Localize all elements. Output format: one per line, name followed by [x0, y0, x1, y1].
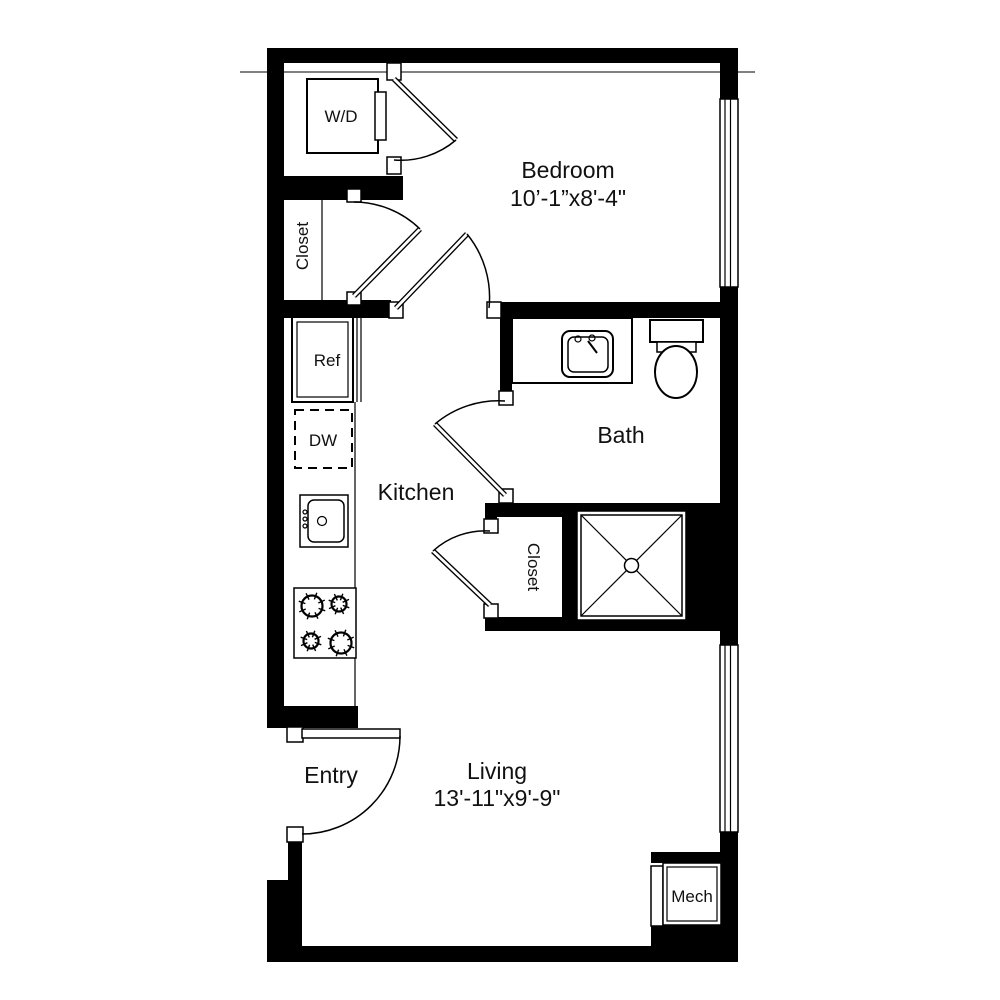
wall-below-wd-closet	[267, 176, 403, 200]
window-frame	[720, 99, 738, 287]
door-leaf	[302, 729, 400, 738]
shower-drain	[625, 559, 639, 573]
wall-kitchen-bedroom-left	[267, 300, 391, 318]
wall-kitchen-cap	[267, 706, 358, 728]
door-jamb	[499, 391, 513, 405]
window-frame	[720, 645, 738, 832]
mech-door-slab	[651, 866, 663, 926]
toilet-bowl	[655, 346, 697, 398]
wall-shower-right-block	[686, 503, 738, 631]
wall-left	[267, 48, 284, 712]
door-jamb	[387, 63, 401, 80]
floor-plan-page: Bedroom 10’-1”x8'-4" Bath Kitchen Living…	[0, 0, 1000, 1000]
bath-label: Bath	[597, 422, 644, 448]
wall-entry-strip	[288, 842, 302, 880]
living-window	[720, 645, 738, 832]
floor-plan-svg: Bedroom 10’-1”x8'-4" Bath Kitchen Living…	[0, 0, 1000, 1000]
entry-label: Entry	[304, 762, 358, 788]
mech-label: Mech	[671, 887, 713, 906]
shower	[577, 511, 686, 620]
door-jamb	[287, 827, 303, 842]
toilet-tank	[650, 320, 703, 342]
wall-shower-divider	[562, 503, 578, 631]
wall-right-upper	[720, 48, 738, 99]
living-label: Living	[467, 758, 527, 784]
kitchen-sink	[300, 495, 348, 547]
wall-bath-left	[500, 318, 512, 394]
wall-top	[267, 48, 738, 63]
wall-bath-top	[499, 302, 738, 318]
stove	[294, 588, 356, 658]
washer-dryer-label: W/D	[324, 107, 357, 126]
bath-vanity	[512, 318, 632, 383]
door-jamb	[484, 604, 498, 618]
dishwasher-label: DW	[309, 431, 337, 450]
living-dimensions: 13'-11"x9'-9"	[434, 785, 561, 811]
bedroom-window	[720, 99, 738, 287]
hall-closet-label: Closet	[524, 543, 543, 591]
door-jamb	[287, 727, 303, 742]
bedroom-closet-label: Closet	[293, 222, 312, 270]
washer-dryer-panel	[375, 92, 386, 140]
refrigerator-label: Ref	[314, 351, 341, 370]
wall-mech-top	[651, 852, 723, 863]
door-jamb	[347, 189, 361, 202]
kitchen-label: Kitchen	[378, 479, 455, 505]
bedroom-label: Bedroom	[521, 157, 614, 183]
wall-mech-bottom	[651, 925, 738, 962]
bedroom-dimensions: 10’-1”x8'-4"	[510, 185, 626, 211]
